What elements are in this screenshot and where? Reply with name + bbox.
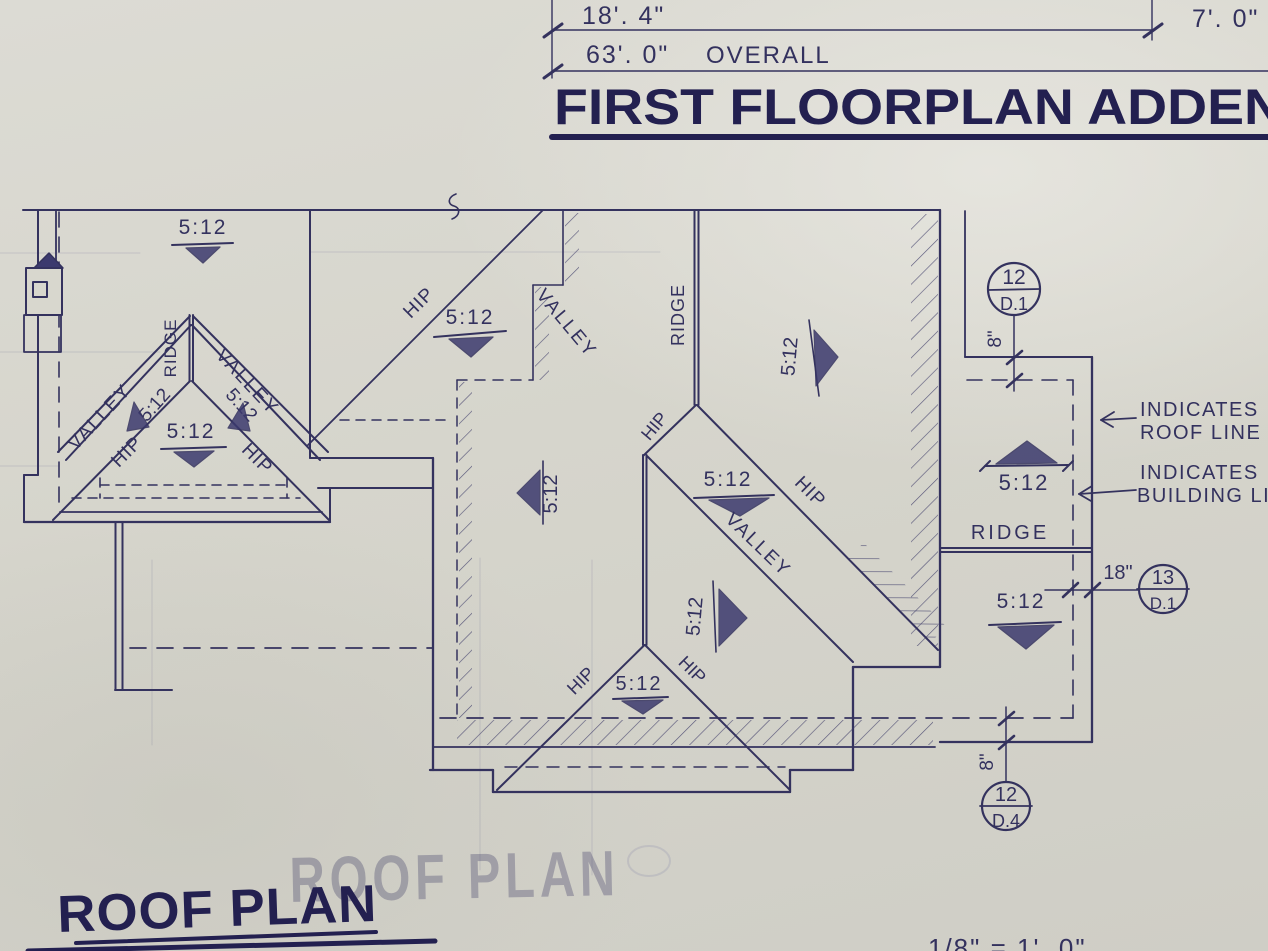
slope-indicator: 5:12 xyxy=(434,306,506,357)
slope-indicator: 5:12 xyxy=(980,441,1073,495)
slope-label: 5:12 xyxy=(704,468,753,491)
drawing-scale: 1/8" = 1'. 0" xyxy=(928,933,1087,951)
valley-hatching xyxy=(565,213,579,285)
slope-indicator: 5:12 xyxy=(989,590,1061,649)
roof-plan-drawing: 18'. 4" 7'. 0" 63'. 0" OVERALL FIRST FLO… xyxy=(0,0,1268,951)
hip-label: HIP xyxy=(675,652,710,687)
dim-overall-value: 63'. 0" xyxy=(586,41,669,69)
slope-indicator: 5:12 xyxy=(161,420,226,467)
annotation-text: INDICATES xyxy=(1140,399,1259,421)
ridge-label: RIDGE xyxy=(971,522,1049,544)
slope-indicator: 5:12 xyxy=(172,216,233,263)
dim-left-label: 18'. 4" xyxy=(582,2,665,30)
detail-bubble-top-right: 12 D.1 8" xyxy=(985,263,1040,391)
detail-number: 12 xyxy=(1002,266,1025,289)
chimney-detail xyxy=(24,253,63,352)
blueprint-page: 18'. 4" 7'. 0" 63'. 0" OVERALL FIRST FLO… xyxy=(0,0,1268,951)
dim-eight-label: 8" xyxy=(977,753,998,770)
pencil-construction-lines xyxy=(0,252,660,875)
detail-sheet: D.4 xyxy=(992,811,1020,831)
slope-indicator: 5:12 xyxy=(694,468,774,516)
slope-label: 5:12 xyxy=(616,673,663,695)
ridge-label: RIDGE xyxy=(668,284,688,346)
slope-label: 5:12 xyxy=(999,470,1050,495)
slope-label: 5:12 xyxy=(540,475,562,514)
hip-label: HIP xyxy=(107,432,146,471)
detail-sheet: D.1 xyxy=(1000,294,1028,314)
detail-bubble-mid-right: 18" 13 D.1 xyxy=(1045,562,1189,613)
annotation-text: BUILDING LIN xyxy=(1137,485,1268,507)
annotation-text: INDICATES xyxy=(1140,462,1259,484)
slope-indicator: 5:12 xyxy=(777,320,838,396)
valley-hatching xyxy=(459,382,472,718)
roof-line-annotation: INDICATES ROOF LINE xyxy=(1101,399,1261,444)
hip-label: HIP xyxy=(637,408,672,444)
detail-number: 12 xyxy=(995,784,1017,806)
dim-eight-label: 8" xyxy=(985,330,1006,347)
slope-label: 5:12 xyxy=(777,336,802,377)
left-wing-building-dashes xyxy=(72,478,300,498)
detail-bubble-bottom: 8" 12 D.4 xyxy=(977,707,1032,831)
detail-number: 13 xyxy=(1152,567,1174,589)
hip-label: HIP xyxy=(399,283,438,322)
building-line-annotation: INDICATES BUILDING LIN xyxy=(1079,462,1268,507)
slope-indicator: 5:12 xyxy=(613,673,668,714)
break-squiggle xyxy=(449,194,458,219)
hip-label: HIP xyxy=(237,439,276,478)
dim-right-label: 7'. 0" xyxy=(1192,5,1259,33)
roof-edge-hatching xyxy=(911,214,938,646)
faint-circle-mark xyxy=(628,846,670,876)
hip-label: HIP xyxy=(563,663,598,698)
detail-sheet: D.1 xyxy=(1150,594,1176,613)
sheet-title: FIRST FLOORPLAN ADDEN xyxy=(554,79,1268,135)
slope-indicator: 5:12 xyxy=(682,581,747,652)
slope-label: 5:12 xyxy=(446,306,495,329)
ridge-label: RIDGE xyxy=(161,319,180,378)
dim-eighteen-label: 18" xyxy=(1103,562,1132,584)
dim-overall-word: OVERALL xyxy=(706,42,831,69)
slope-label: 5:12 xyxy=(179,216,228,239)
slope-label: 5:12 xyxy=(682,596,707,637)
eave-hatching xyxy=(457,720,933,745)
valley-label: VALLEY xyxy=(721,509,795,581)
slope-label: 5:12 xyxy=(997,590,1046,613)
connector-lines xyxy=(115,420,452,690)
slope-label: 5:12 xyxy=(167,420,216,443)
slope-indicator: 5:12 xyxy=(517,461,562,524)
central-roof-lines xyxy=(308,210,938,790)
annotation-text: ROOF LINE xyxy=(1140,422,1261,444)
central-roof-outline xyxy=(310,194,1073,792)
